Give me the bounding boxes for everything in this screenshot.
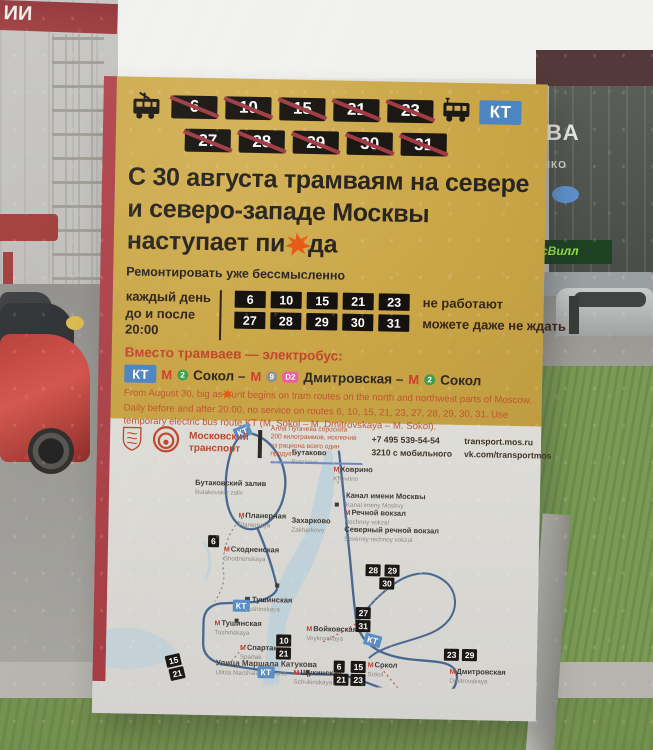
fire-escape-stairs bbox=[52, 34, 104, 304]
map-route-badge: 15 bbox=[351, 661, 367, 673]
tram-icon bbox=[129, 90, 164, 126]
map-route-badge: 28 bbox=[365, 564, 381, 576]
map-kt-badge: КТ bbox=[233, 600, 250, 612]
map-station-planernaya: МПланернаяPlanernaya bbox=[238, 505, 286, 530]
headline-line3-pre: наступает пи bbox=[127, 226, 286, 257]
schedule-label-line2: до и после bbox=[125, 305, 219, 323]
poster-footer: Московский транспорт Алла Пугачева сброс… bbox=[121, 422, 534, 468]
map-route-badge: 21 bbox=[333, 674, 349, 686]
store-sign: сВилл bbox=[538, 240, 612, 264]
route-badges: 6 10 15 21 23 КТ 27 28 29 30 31 bbox=[171, 90, 522, 158]
route-badge: 31 bbox=[378, 314, 409, 332]
map-station-dmitrovskaya: МДмитровскаяDmitrovskaya bbox=[449, 661, 506, 687]
route-badge: 6 bbox=[235, 291, 266, 309]
map-route-badge: 23 bbox=[350, 674, 366, 686]
metro-m-icon: М bbox=[333, 466, 339, 473]
right-building-roofband bbox=[536, 50, 653, 88]
map-route-badge: 29 bbox=[384, 564, 400, 576]
poster-headline: С 30 августа трамваям на севере и северо… bbox=[126, 160, 532, 268]
dark-bollard bbox=[569, 296, 579, 334]
metro-m-icon: М bbox=[408, 371, 419, 386]
small-red-sign bbox=[3, 252, 13, 288]
electrobus-block: Вместо трамваев — электробус: КТ М2 Соко… bbox=[124, 344, 482, 389]
route-badge: 23 bbox=[379, 293, 410, 311]
map-route-badge: 6 bbox=[208, 535, 219, 547]
route-badge: 30 bbox=[342, 314, 373, 332]
route-badge: 15 bbox=[307, 292, 338, 310]
route-badge: 29 bbox=[293, 131, 339, 155]
route-badge: 10 bbox=[225, 96, 271, 120]
metro-m-icon: М bbox=[161, 367, 172, 382]
schedule-note2: можете даже не ждать bbox=[422, 316, 566, 334]
route-badge: 10 bbox=[271, 291, 302, 309]
map-station-severny-rechnoy: Северный речной вокзалSeverniy rechnoy v… bbox=[344, 519, 444, 545]
route-badge: 15 bbox=[279, 97, 325, 121]
map-station-shodnenskaya: МСходненскаяShodnenskaya bbox=[224, 538, 280, 564]
route-badge: 21 bbox=[343, 293, 374, 311]
map-kt-badge: КТ bbox=[257, 666, 274, 678]
metro-m-icon: М bbox=[250, 368, 261, 383]
route-badge: 28 bbox=[239, 130, 285, 154]
metro-m-icon: М bbox=[306, 626, 312, 633]
schedule-note1: не работают bbox=[423, 295, 504, 312]
schedule-label-line3: 20:00 bbox=[125, 322, 219, 340]
electrobus-stop1: Сокол – bbox=[193, 367, 246, 383]
brand-line2: транспорт bbox=[189, 443, 249, 456]
brand-name: Московский транспорт bbox=[189, 431, 249, 455]
cancelled-routes-row: 6 10 15 21 23 КТ 27 28 29 30 31 bbox=[129, 89, 522, 158]
right-building-sign-small: ЧКО bbox=[543, 160, 567, 171]
metro-line9-icon: 9 bbox=[266, 371, 277, 382]
d2-diameter-icon: D2 bbox=[282, 371, 298, 382]
social-link: vk.com/transportmos bbox=[464, 448, 552, 462]
map-route-badge: 21 bbox=[276, 647, 292, 659]
electrobus-stop2: Дмитровская – bbox=[303, 369, 403, 386]
metro-m-icon: М bbox=[345, 510, 351, 517]
map-station-zakharkovo: ЗахарковоZakharkovo bbox=[291, 510, 331, 535]
map-station-sokol: МСоколSokol bbox=[367, 654, 397, 679]
red-awning bbox=[0, 214, 58, 241]
blue-oval-sign bbox=[552, 186, 579, 203]
schedule-row2: 27 28 29 30 31 можете даже не ждать bbox=[234, 312, 566, 335]
map-label-butakovskiy-zaliv: Бутаковский заливButakovskiy zaliv bbox=[195, 472, 285, 498]
schedule-routes: 6 10 15 21 23 не работают 27 28 29 30 31… bbox=[219, 290, 567, 347]
headline-line3-post: да bbox=[308, 230, 338, 259]
transport-poster: 6 10 15 21 23 КТ 27 28 29 30 31 bbox=[92, 76, 548, 721]
qr-code bbox=[257, 430, 262, 458]
map-route-badge: 10 bbox=[276, 634, 292, 646]
route-badge: 28 bbox=[270, 312, 301, 330]
phones: +7 495 539-54-54 3210 с мобильного bbox=[371, 434, 452, 460]
schedule-label: каждый день до и после 20:00 bbox=[125, 288, 220, 340]
route-badges-row1: 6 10 15 21 23 КТ bbox=[171, 90, 522, 129]
metro-m-icon: М bbox=[294, 670, 300, 677]
map-route-badge: 27 bbox=[356, 607, 372, 619]
kt-route-badge: КТ bbox=[124, 364, 156, 383]
route-badge: 6 bbox=[171, 95, 217, 119]
map-station-tushinskaya-metro: МТушинскаяTushinskaya bbox=[214, 612, 262, 637]
metro-m-icon: М bbox=[224, 546, 230, 553]
metro-line2-icon: 2 bbox=[424, 374, 435, 385]
route-badge: 29 bbox=[306, 313, 337, 331]
left-building-sign: ИИ bbox=[0, 0, 118, 34]
metro-line2-icon: 2 bbox=[177, 369, 188, 380]
moscow-coat-of-arms-icon bbox=[121, 426, 144, 457]
electrobus-stop3: Сокол bbox=[440, 372, 481, 388]
english-note-pre: From August 30, big as bbox=[124, 387, 223, 400]
map-station-voykovskaya: МВойковскаяVoykovskaya bbox=[306, 618, 357, 643]
street-photo-scene: ИИ ВА ЧКО сВилл 6 10 15 bbox=[0, 0, 653, 750]
metro-m-icon: М bbox=[368, 662, 374, 669]
schedule-label-line1: каждый день bbox=[126, 288, 220, 306]
map-route-badge: 30 bbox=[379, 577, 395, 589]
electric-bus-icon bbox=[441, 96, 472, 128]
route-badge: 27 bbox=[234, 312, 265, 330]
route-badge: 31 bbox=[401, 133, 447, 157]
brand-line1: Московский bbox=[189, 431, 249, 444]
phone-mobile: 3210 с мобильного bbox=[371, 446, 452, 460]
metro-m-icon: М bbox=[240, 645, 246, 652]
route-badge: 23 bbox=[387, 99, 433, 123]
yellow-bollard bbox=[66, 316, 84, 330]
metro-m-icon: М bbox=[214, 620, 220, 627]
contacts: +7 495 539-54-54 3210 с мобильного trans… bbox=[371, 434, 552, 462]
websites: transport.mos.ru vk.com/transportmos bbox=[464, 435, 552, 462]
map-route-badge: 29 bbox=[462, 649, 478, 661]
schedule-block: каждый день до и после 20:00 6 10 15 21 … bbox=[125, 288, 567, 346]
route-badge: 30 bbox=[347, 132, 393, 156]
moscow-transport-roundel-icon bbox=[152, 425, 181, 459]
right-building-sign-big: ВА bbox=[546, 120, 581, 146]
route-badge: 27 bbox=[185, 129, 231, 153]
map-route-badge: 6 bbox=[334, 661, 345, 673]
route-badge: 21 bbox=[333, 98, 379, 122]
map-station-tushinskaya-rail: ТушинскаяTushinskaya bbox=[245, 589, 293, 614]
map-route-badge: 31 bbox=[355, 620, 371, 632]
qr-caption: Алла Пугачева сбросила 200 килограммов, … bbox=[270, 425, 363, 465]
map-route-badge: 23 bbox=[444, 649, 460, 661]
qr-caption-line3: из рациона всего один продукт! bbox=[270, 442, 362, 461]
silver-car-window bbox=[574, 292, 646, 307]
metro-m-icon: М bbox=[239, 513, 245, 520]
left-sign-letters: ИИ bbox=[3, 2, 33, 25]
kt-route-badge: КТ bbox=[479, 100, 521, 125]
metro-m-icon: М bbox=[450, 669, 456, 676]
red-car-wheel bbox=[28, 428, 74, 474]
